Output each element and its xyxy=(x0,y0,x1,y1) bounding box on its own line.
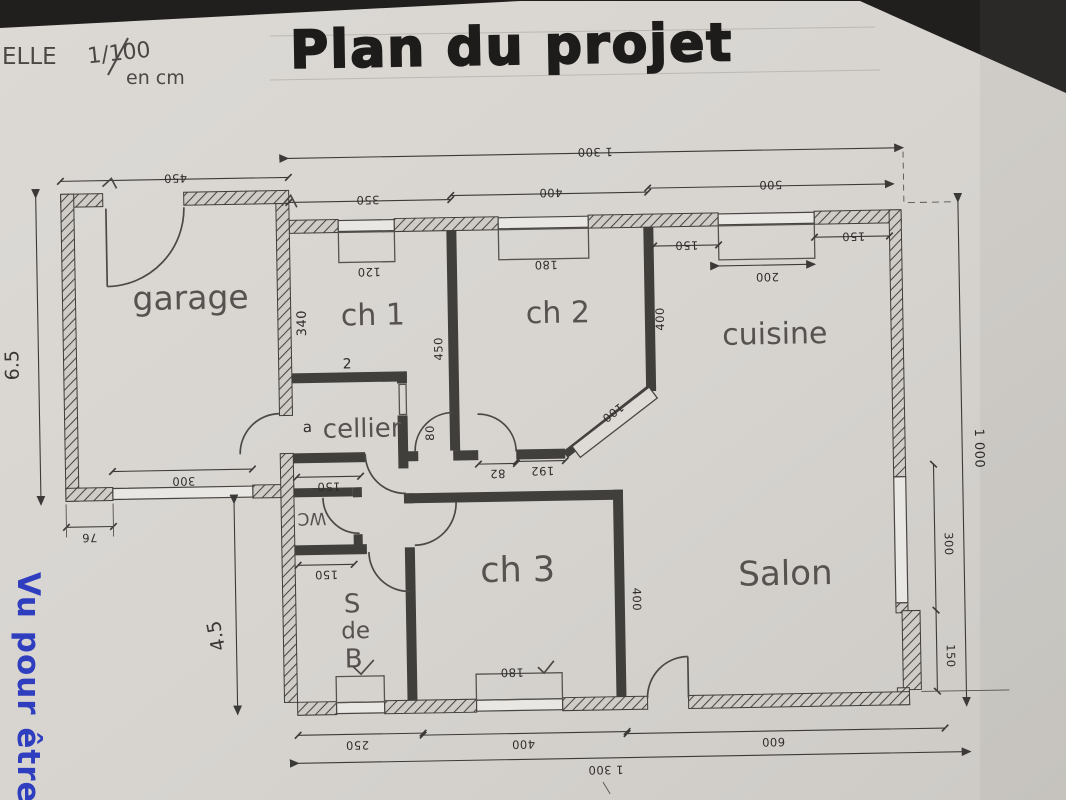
dim-ch1-height: 340 xyxy=(295,310,310,337)
room-label-cuisine: cuisine xyxy=(722,316,828,353)
scale-label: ELLE xyxy=(2,44,57,70)
dim-right-offset: 150 xyxy=(944,644,958,668)
dim-bottom-250: 250 xyxy=(345,738,369,752)
dim-garage-height-m: 6.5 xyxy=(1,350,24,381)
room-label-sdb-3: B xyxy=(345,644,363,674)
salon-bay-window xyxy=(902,610,921,689)
stamp-text: Vu pour être annexé xyxy=(10,572,46,800)
stray-mark-a: a xyxy=(303,418,313,436)
dim-ch2-width: 400 xyxy=(539,186,563,200)
floorplan-photo: Plan du projet ELLE 1/100 en cm Vu pour … xyxy=(0,0,1066,800)
dim-garage-window: 300 xyxy=(172,474,196,488)
dim-ch3-height: 400 xyxy=(630,588,644,612)
dim-right-1000: 1 000 xyxy=(971,428,987,468)
dim-cellier-width: 150 xyxy=(317,480,341,494)
dim-ch3-window: 180 xyxy=(500,665,524,679)
dim-cuisine-width: 500 xyxy=(759,178,783,192)
scale-unit: en cm xyxy=(126,67,185,89)
dim-ch2-window: 180 xyxy=(534,258,558,272)
dim-top-1300: 1 300 xyxy=(577,145,613,160)
dim-cuisine-window: 200 xyxy=(755,270,779,284)
dim-garage-offset: 76 xyxy=(82,531,98,545)
page-title: Plan du projet xyxy=(290,13,734,81)
room-label-salon: Salon xyxy=(738,553,833,595)
dim-wc-width: 150 xyxy=(314,568,338,582)
room-label-ch1: ch 1 xyxy=(340,297,405,333)
dim-cuisine-height: 400 xyxy=(653,307,667,331)
room-label-ch2: ch 2 xyxy=(525,295,590,331)
dim-bottom-1300: 1 300 xyxy=(588,763,624,778)
dim-bottom-600: 600 xyxy=(761,735,785,749)
floorplan-svg: Plan du projet ELLE 1/100 en cm Vu pour … xyxy=(0,0,1066,800)
stray-mark-2: 2 xyxy=(343,356,353,372)
dim-hall-width: 192 xyxy=(531,464,555,478)
dim-cuisine-left-offset: 150 xyxy=(675,238,699,252)
room-label-ch3: ch 3 xyxy=(480,550,556,591)
dim-ch1-depth: 450 xyxy=(431,337,445,361)
paper-fold-shadow xyxy=(980,0,1066,800)
room-label-cellier: cellier xyxy=(323,413,402,444)
room-label-wc: WC xyxy=(297,508,326,528)
room-label-sdb-2: de xyxy=(341,618,370,644)
room-label-sdb-1: S xyxy=(344,589,361,619)
dim-garage-width: 450 xyxy=(164,171,188,185)
dim-ch1-window: 120 xyxy=(357,265,381,279)
dim-ch2-door: 82 xyxy=(490,467,506,481)
dim-right-window: 300 xyxy=(942,532,956,556)
dim-bottom-400: 400 xyxy=(511,737,535,751)
room-label-garage: garage xyxy=(132,277,249,318)
dim-ch1-door: 80 xyxy=(423,425,437,441)
dim-cuisine-right-offset: 150 xyxy=(842,229,866,243)
dim-ch1-width: 350 xyxy=(356,193,380,207)
